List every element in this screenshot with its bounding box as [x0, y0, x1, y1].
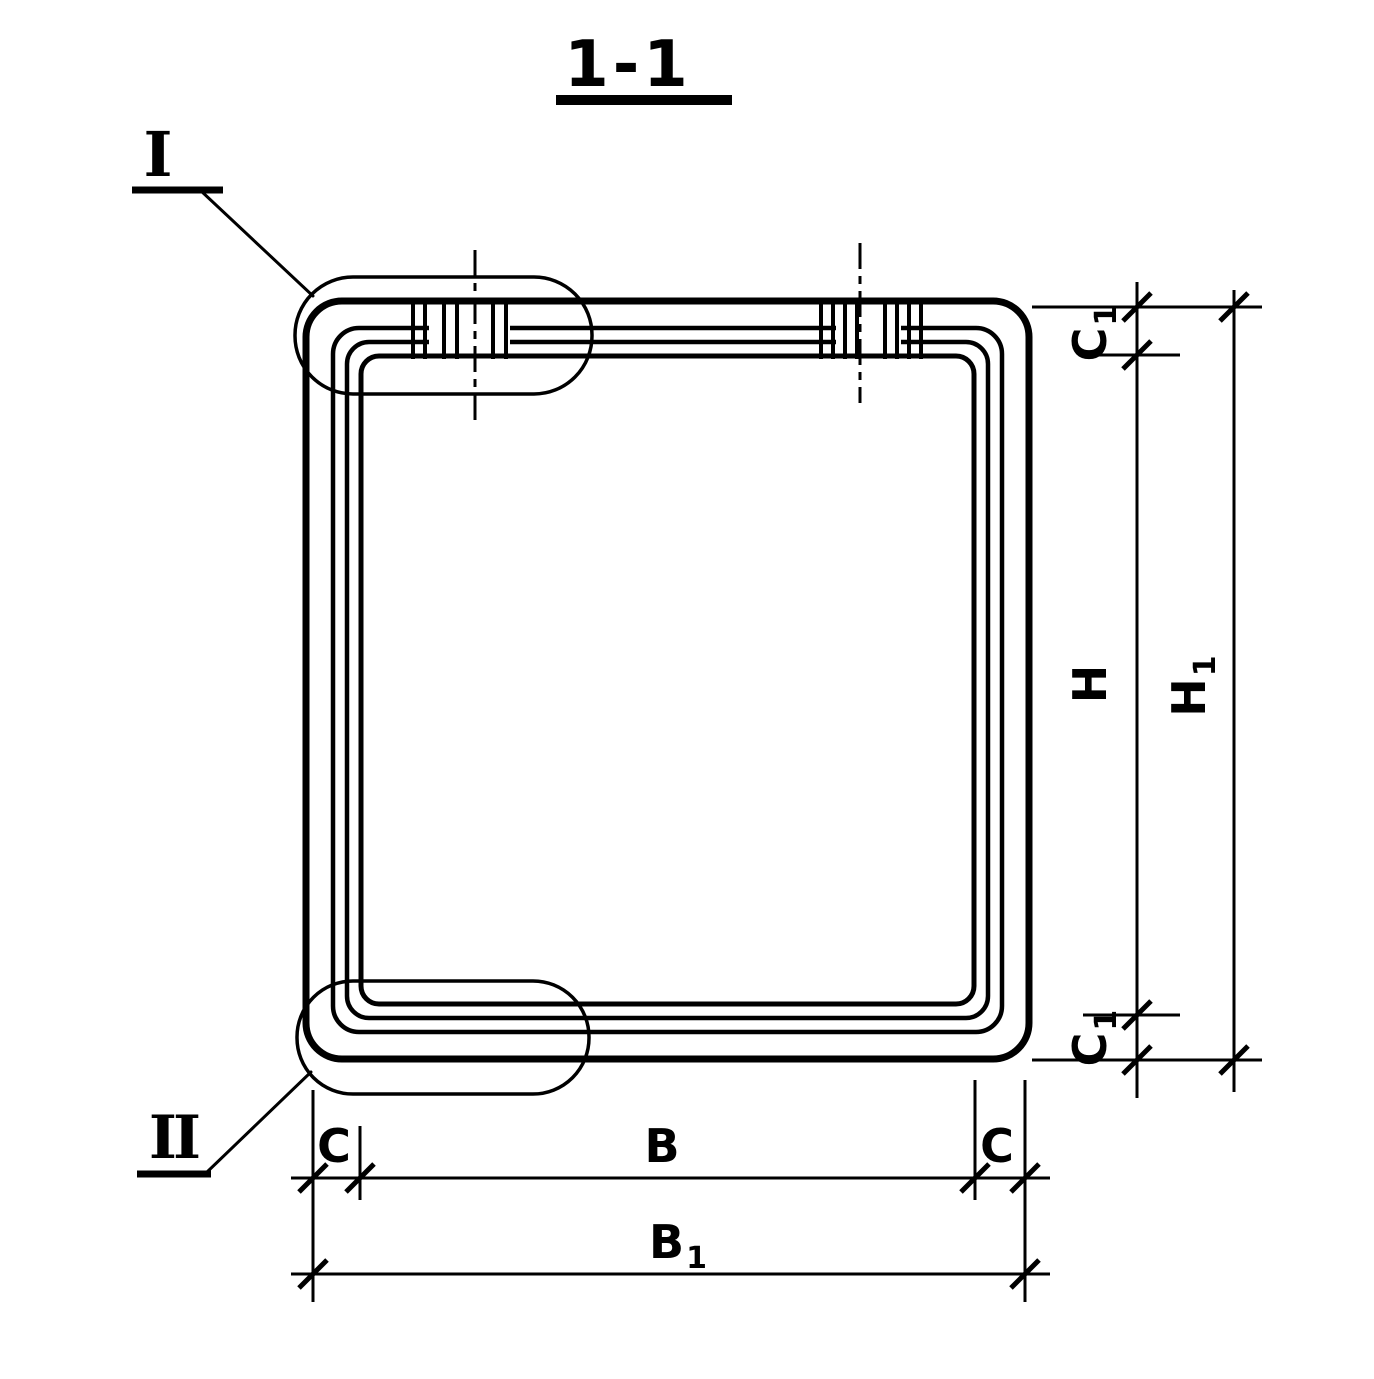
- joint-gap: [429, 307, 510, 352]
- dim-label-c1-top: C1: [1063, 305, 1124, 362]
- dim-label-sub: 1: [1089, 305, 1124, 326]
- top-joint-right: [821, 243, 921, 403]
- dim-label-c-left: C: [317, 1119, 351, 1173]
- dim-label-h1: H1: [1162, 655, 1223, 716]
- callout-detail-2: II: [137, 1072, 311, 1174]
- drawing-sheet: 1-1 I II: [0, 0, 1374, 1379]
- dim-label-b1: B1: [649, 1215, 707, 1276]
- dim-label-base: H: [1162, 678, 1216, 717]
- inner-contour: [361, 356, 974, 1004]
- dim-label-c-right: C: [980, 1119, 1014, 1173]
- dim-label-sub: 1: [1089, 1010, 1124, 1031]
- callout-detail-1: I: [132, 118, 313, 296]
- outer-contour: [306, 301, 1029, 1059]
- dim-label-h: H: [1063, 665, 1117, 704]
- detail-boundary-bottom-left: [297, 981, 589, 1094]
- dimensions-right: C1 H C1 H1: [1032, 282, 1262, 1098]
- dimensions-bottom: C B C B1: [291, 1080, 1050, 1302]
- dim-label-c1-bottom: C1: [1063, 1010, 1124, 1067]
- section-title: 1-1: [564, 28, 692, 102]
- callout-leader-1: [200, 190, 313, 296]
- dim-label-base: B: [649, 1215, 684, 1269]
- dim-label-sub: 1: [686, 1241, 707, 1276]
- mid-contour-1: [333, 328, 1002, 1032]
- frame-contours: [306, 301, 1029, 1059]
- section-drawing: 1-1 I II: [0, 0, 1374, 1379]
- callout-label-2: II: [149, 1103, 199, 1173]
- dim-label-base: C: [1063, 328, 1117, 362]
- dim-label-sub: 1: [1188, 655, 1223, 676]
- mid-contour-2: [347, 342, 988, 1018]
- dim-label-base: C: [1063, 1033, 1117, 1067]
- callout-label-1: I: [143, 118, 172, 191]
- callout-leader-2: [206, 1072, 311, 1173]
- dim-label-b: B: [644, 1119, 679, 1173]
